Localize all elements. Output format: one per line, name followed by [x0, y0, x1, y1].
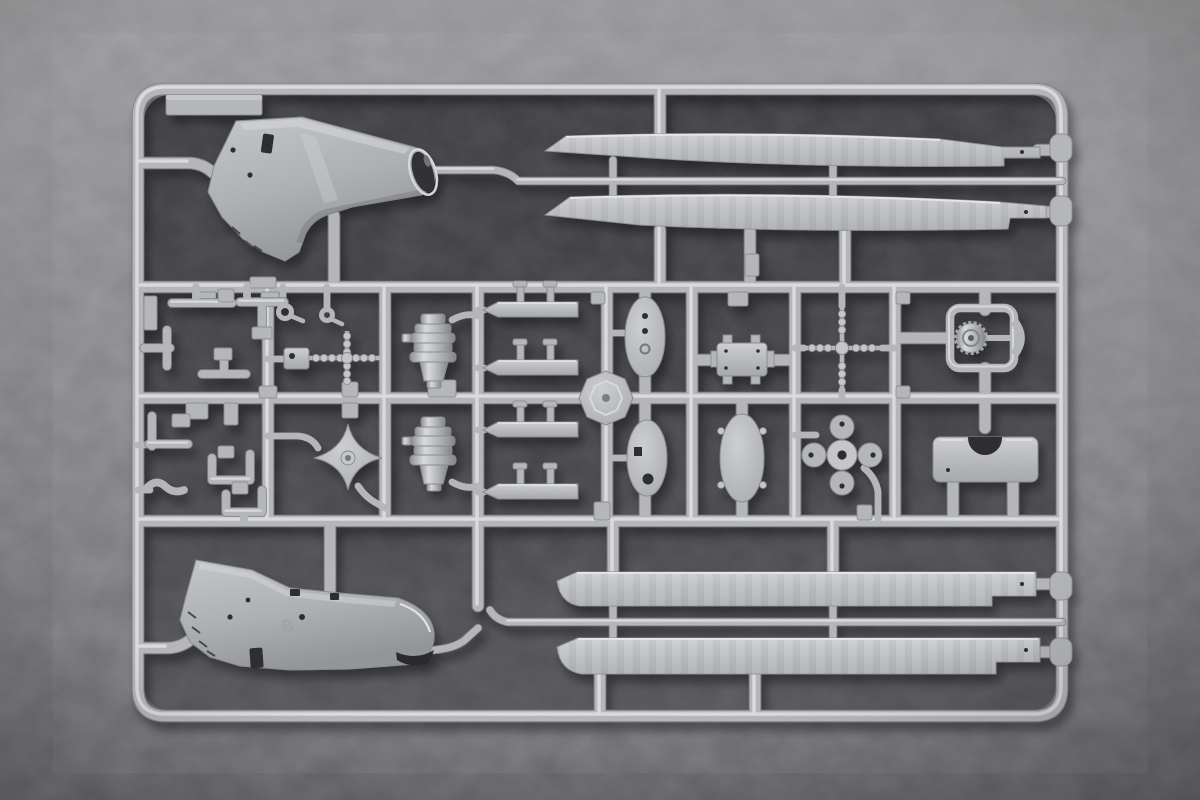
vignette: [0, 0, 1200, 800]
sprue-photo: B: [0, 0, 1200, 800]
